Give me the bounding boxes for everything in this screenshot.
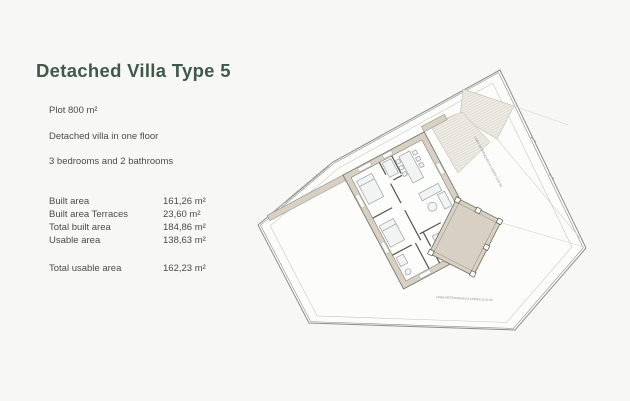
floor-plan-svg: LINEA RETRANQUEO A LINDES (3,00 M) LINEA…	[250, 55, 600, 345]
area-label: Built area	[49, 195, 163, 208]
area-table: Built area 161,26 m² Built area Terraces…	[49, 195, 239, 275]
brochure-page: Detached Villa Type 5 Plot 800 m² Detach…	[0, 0, 630, 401]
table-row: Built area Terraces 23,60 m²	[49, 208, 239, 221]
spec-floors: Detached villa in one floor	[49, 131, 158, 142]
area-value: 162,23 m²	[163, 262, 239, 275]
area-value: 161,26 m²	[163, 195, 239, 208]
table-row-total: Total usable area 162,23 m²	[49, 262, 239, 275]
area-value: 23,60 m²	[163, 208, 239, 221]
area-label: Usable area	[49, 234, 163, 247]
site-plan-drawing: LINEA RETRANQUEO A LINDES (3,00 M) LINEA…	[250, 55, 600, 345]
area-value: 184,86 m²	[163, 221, 239, 234]
spec-bedrooms-bathrooms: 3 bedrooms and 2 bathrooms	[49, 156, 173, 167]
area-label: Total usable area	[49, 262, 163, 275]
page-title: Detached Villa Type 5	[36, 60, 231, 82]
spec-plot-size: Plot 800 m²	[49, 105, 98, 116]
area-label: Total built area	[49, 221, 163, 234]
area-label: Built area Terraces	[49, 208, 163, 221]
table-row: Total built area 184,86 m²	[49, 221, 239, 234]
area-value: 138,63 m²	[163, 234, 239, 247]
table-row: Usable area 138,63 m²	[49, 234, 239, 247]
table-row: Built area 161,26 m²	[49, 195, 239, 208]
